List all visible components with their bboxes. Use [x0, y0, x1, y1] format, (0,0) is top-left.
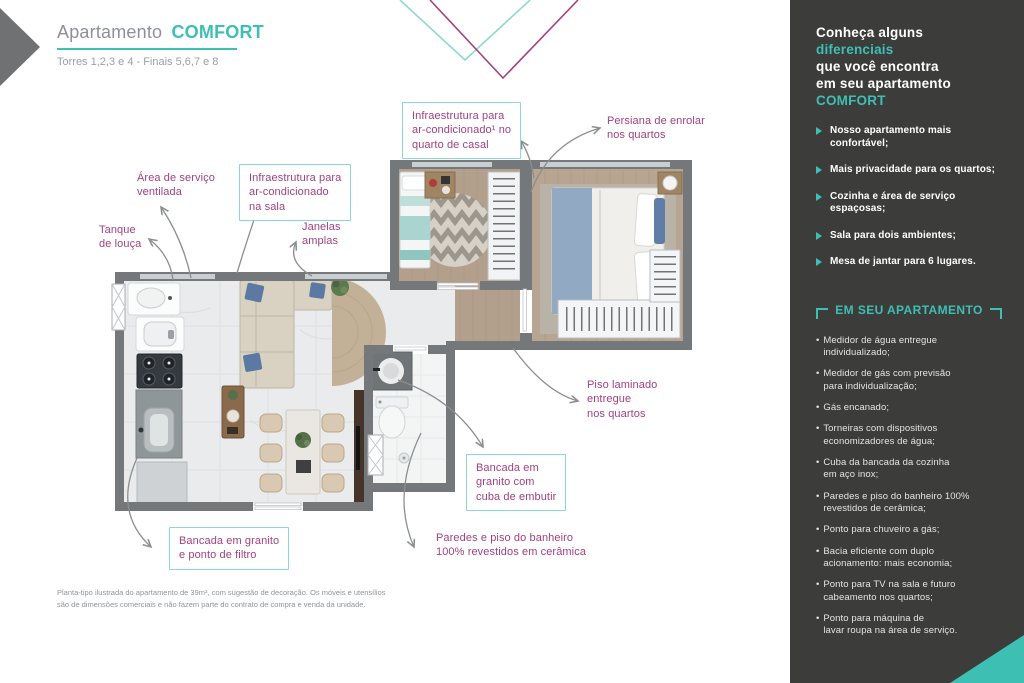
differential-label: Sala para dois ambientes; — [830, 230, 956, 243]
hatched-window — [112, 284, 125, 330]
intro-line-highlight: diferenciais — [816, 41, 1002, 58]
list-item: Bacia eficiente com duplo acionamento: m… — [816, 546, 1002, 571]
vanity-sink — [368, 352, 412, 390]
list-item: Sala para dois ambientes; — [816, 230, 1002, 243]
sofa-pillow-icon — [243, 353, 263, 373]
closet-master — [558, 250, 680, 338]
stove — [137, 354, 182, 388]
kitchen-sink-counter — [136, 390, 182, 458]
window — [540, 162, 670, 167]
washing-machine — [136, 317, 184, 351]
window — [305, 274, 387, 279]
list-item: Ponto para máquina de lavar roupa na áre… — [816, 613, 1002, 638]
toilet — [376, 397, 408, 438]
sofa-pillow-icon — [309, 282, 326, 299]
sofa-pillow-icon — [244, 283, 264, 303]
list-item: Cozinha e área de serviço espaçosas; — [816, 191, 1002, 216]
hall-wood-floor — [455, 281, 520, 343]
sofa — [240, 280, 332, 388]
bedroom2-master — [540, 172, 682, 338]
feature-label: Medidor de gás com previsão para individ… — [823, 368, 950, 393]
intro-line: que você encontra — [816, 58, 1002, 75]
callout-janelas: Janelas amplas — [302, 220, 341, 249]
bedroom2-floor — [532, 169, 683, 343]
title-prefix: Apartamento — [57, 22, 162, 42]
shower — [399, 453, 409, 463]
door — [523, 289, 527, 331]
plant-icon — [331, 278, 349, 296]
title-highlight: COMFORT — [171, 22, 263, 42]
callout-persiana: Persiana de enrolar nos quartos — [607, 114, 705, 143]
hatched-window — [368, 435, 383, 475]
feature-label: Ponto para chuveiro a gás; — [823, 524, 939, 536]
feature-label: Cuba da bancada da cozinha em aço inox; — [823, 457, 949, 482]
differentials-list: Nosso apartamento mais confortável; Mais… — [816, 125, 1002, 269]
tv-console — [354, 390, 367, 502]
living-room — [222, 278, 386, 502]
features-list: Medidor de água entregue individualizado… — [816, 335, 1002, 638]
feature-label: Ponto para TV na sala e futuro cabeament… — [823, 579, 955, 604]
bedside-desk — [425, 172, 455, 198]
callout-piso-laminado: Piso laminado entregue nos quartos — [587, 378, 657, 421]
fridge — [137, 462, 187, 504]
dining-set — [260, 410, 344, 494]
feature-label: Medidor de água entregue individualizado… — [823, 335, 937, 360]
bullet-arrow-icon — [816, 193, 822, 201]
console-table — [222, 386, 244, 438]
callout-bancada-cuba: Bancada em granito com cuba de embutir — [466, 454, 566, 511]
page-subtitle: Torres 1,2,3 e 4 - Finais 5,6,7 e 8 — [57, 56, 264, 68]
list-item: Ponto para chuveiro a gás; — [816, 524, 1002, 536]
wardrobe — [488, 172, 520, 280]
bedroom1 — [400, 172, 520, 280]
page-title: Apartamento COMFORT — [57, 22, 264, 43]
rug-semicircle — [332, 278, 386, 386]
entry-door — [255, 503, 301, 506]
callout-infra-ac-quarto: Infraestrutura para ar-condicionado¹ no … — [402, 102, 521, 159]
plant-icon — [295, 432, 311, 448]
list-item: Cuba da bancada da cozinha em aço inox; — [816, 457, 1002, 482]
window — [140, 274, 215, 279]
dining-table — [286, 410, 320, 494]
chevron-teal-decoration — [400, 0, 530, 60]
feature-label: Ponto para máquina de lavar roupa na áre… — [823, 613, 957, 638]
intro-line-highlight: COMFORT — [816, 92, 1002, 109]
feature-label: Bacia eficiente com duplo acionamento: m… — [823, 546, 952, 571]
single-bed — [400, 172, 430, 268]
callout-area-servico: Área de serviço ventilada — [137, 171, 215, 200]
differential-label: Mais privacidade para os quartos; — [830, 164, 995, 177]
bullet-arrow-icon — [816, 166, 822, 174]
bedroom1-floor — [399, 169, 520, 283]
title-underline — [57, 48, 237, 50]
bedside-table — [658, 172, 682, 194]
list-item: Torneiras com dispositivos economizadore… — [816, 423, 1002, 448]
differential-label: Mesa de jantar para 6 lugares. — [830, 256, 976, 269]
section-title: EM SEU APARTAMENTO — [816, 303, 1002, 319]
door — [438, 287, 478, 290]
kitchen-service-area — [128, 283, 187, 504]
list-item: Paredes e piso do banheiro 100% revestid… — [816, 491, 1002, 516]
bullet-arrow-icon — [816, 127, 822, 135]
double-bed — [552, 188, 665, 314]
callout-tanque: Tanque de louça — [99, 223, 141, 252]
callout-paredes-banheiro: Paredes e piso do banheiro 100% revestid… — [436, 531, 586, 560]
bathroom-floor — [373, 354, 446, 485]
walls — [115, 160, 692, 511]
feature-label: Gás encanado; — [823, 402, 889, 414]
list-item: Medidor de gás com previsão para individ… — [816, 368, 1002, 393]
list-item: Nosso apartamento mais confortável; — [816, 125, 1002, 150]
list-item: Gás encanado; — [816, 402, 1002, 414]
sidebar-intro: Conheça alguns diferenciais que você enc… — [816, 24, 1002, 109]
callout-bancada-filtro: Bancada em granito e ponto de filtro — [169, 527, 289, 570]
windows-and-doors — [112, 162, 670, 510]
differential-label: Nosso apartamento mais confortável; — [830, 125, 1002, 150]
disclaimer-text: Planta-tipo ilustrada do apartamento de … — [57, 587, 387, 610]
intro-line: Conheça alguns — [816, 24, 1002, 41]
list-item: Mais privacidade para os quartos; — [816, 164, 1002, 177]
door — [438, 283, 478, 286]
rug-master — [540, 184, 676, 334]
rug-round-chevron — [413, 193, 497, 267]
list-item: Mesa de jantar para 6 lugares. — [816, 256, 1002, 269]
corner-arrow-decoration — [0, 8, 40, 86]
intro-line: em seu apartamento — [816, 75, 1002, 92]
door — [395, 347, 426, 350]
page-header: Apartamento COMFORT Torres 1,2,3 e 4 - F… — [57, 22, 264, 68]
differential-label: Cozinha e área de serviço espaçosas; — [830, 191, 1002, 216]
bullet-arrow-icon — [816, 232, 822, 240]
bullet-arrow-icon — [816, 258, 822, 266]
section-title-label: EM SEU APARTAMENTO — [828, 303, 989, 317]
feature-label: Torneiras com dispositivos economizadore… — [823, 423, 937, 448]
list-item: Medidor de água entregue individualizado… — [816, 335, 1002, 360]
bracket-left-decoration — [816, 308, 828, 319]
sidebar: Conheça alguns diferenciais que você enc… — [790, 0, 1024, 683]
bathroom — [368, 352, 412, 463]
floors — [124, 169, 683, 506]
window — [412, 162, 492, 167]
list-item: Ponto para TV na sala e futuro cabeament… — [816, 579, 1002, 604]
chevron-magenta-decoration — [430, 0, 578, 78]
callout-infra-ac-sala: Infraestrutura para ar-condicionado na s… — [239, 164, 351, 221]
entry-door — [255, 507, 301, 510]
feature-label: Paredes e piso do banheiro 100% revestid… — [823, 491, 969, 516]
bracket-right-decoration — [990, 308, 1002, 319]
laundry-tank — [128, 283, 180, 315]
